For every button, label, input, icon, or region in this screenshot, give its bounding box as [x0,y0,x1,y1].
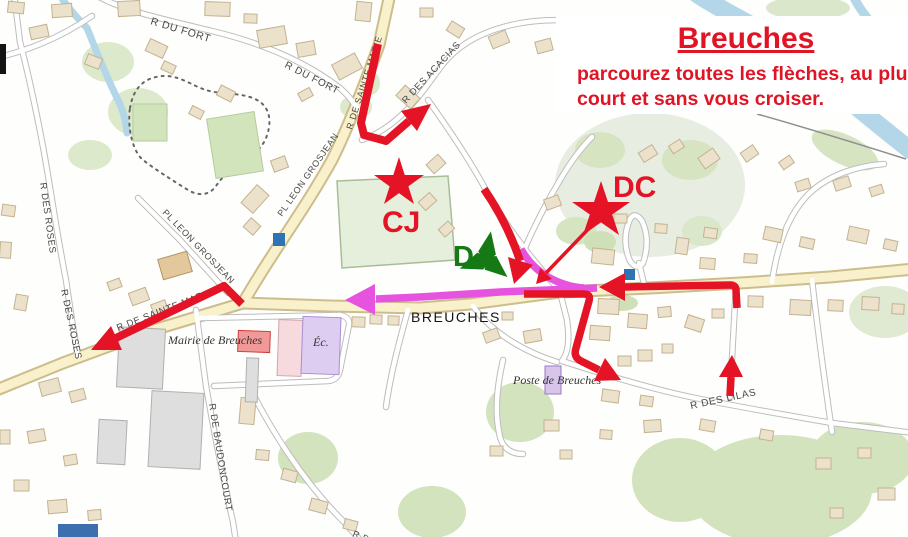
building [523,329,542,344]
title-instructions-line2: court et sans vous croiser. [577,88,824,110]
building [14,294,28,311]
sports-pitch [207,112,264,179]
building [7,1,24,14]
building [420,8,433,17]
building [662,344,673,353]
building [205,2,230,17]
edge-mark [0,44,6,74]
building [828,300,844,312]
title-instructions-line1: parcourez toutes les flèches, au plus [577,63,908,85]
building [790,299,812,315]
building [618,356,631,366]
building [1,204,15,217]
building [0,430,10,444]
building [639,395,653,407]
building [878,488,895,500]
building [0,242,12,259]
building [47,499,67,514]
map-screenshot: R DU FORTR DU FORTR DES ACACIASR DE SAIN… [0,0,908,537]
building [600,430,613,440]
building [883,239,898,251]
building [490,446,503,456]
building [892,304,905,315]
star-label-dc: DC [613,171,656,204]
building [658,306,672,317]
building [644,419,662,432]
red-route-arrow-shaft [730,377,731,396]
poi-label: Mairie de Breuches [167,333,263,347]
blue-square-marker [273,233,285,246]
building [699,419,716,432]
green-area [68,140,112,170]
building [799,237,815,250]
building [52,3,73,17]
building [614,214,627,223]
map-canvas: R DU FORTR DU FORTR DES ACACIASR DE SAIN… [0,0,908,537]
building [675,237,689,255]
star-label-cj: CJ [382,206,420,239]
building [655,224,668,234]
poi-label: Éc. [312,335,329,349]
title-heading: Breuches [678,22,815,55]
place-label-breuches: BREUCHES [411,309,501,325]
title-box-layer: Breuchesparcourez toutes les flèches, au… [556,16,908,114]
building [598,298,620,314]
building [700,257,716,269]
building [591,248,614,265]
building [502,312,513,320]
building [748,296,763,308]
poi-label: Poste de Breuches [512,373,602,387]
building [118,0,141,16]
building [256,449,270,460]
building [830,508,843,518]
building-gray [97,419,127,464]
building-pink [277,320,303,377]
building [712,309,724,318]
building [858,448,871,458]
edge-mark [58,524,98,537]
building [627,313,647,329]
building [816,458,831,469]
building [388,316,399,325]
green-marker-label-d: D [453,241,474,273]
building [296,41,316,58]
building [352,317,365,327]
building [638,350,652,361]
sports-pitch [133,104,167,141]
building [27,429,46,444]
building [14,480,29,491]
blue-square-marker [624,269,635,280]
building [560,450,572,459]
green-area [398,486,466,537]
building-gray [245,358,259,402]
building [590,325,611,340]
building-gray [148,391,204,470]
building [544,420,559,431]
building [370,315,382,324]
building [862,297,880,311]
building [759,429,774,441]
building [244,14,257,23]
building [88,509,102,520]
building [703,227,717,239]
building [355,1,372,21]
building [744,254,758,264]
building [63,454,78,466]
building [601,389,620,403]
